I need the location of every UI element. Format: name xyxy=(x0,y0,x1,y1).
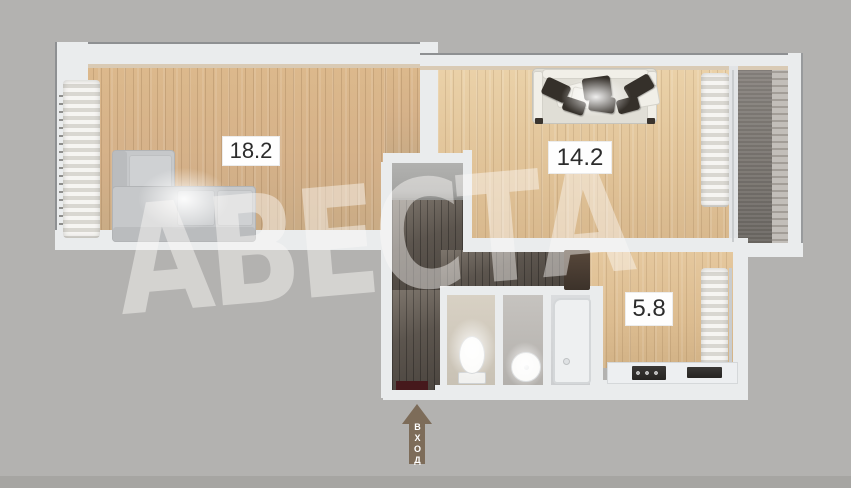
room-14-area: 14.2 xyxy=(557,144,604,172)
kitchen-window-frame xyxy=(729,268,732,366)
room-18-floor-niche xyxy=(385,66,422,156)
wall xyxy=(440,288,447,388)
curtain xyxy=(701,268,728,366)
curtain xyxy=(701,73,729,207)
hallway-wardrobe xyxy=(392,162,463,200)
wall xyxy=(381,162,392,398)
bottom-shadow-band xyxy=(0,476,851,488)
curtain xyxy=(63,80,100,238)
floor-plan: АВЕСТА 18.2 14.2 5.8 ВХОД xyxy=(0,0,851,488)
wall xyxy=(55,42,437,68)
wall xyxy=(383,390,435,400)
wall xyxy=(495,295,503,385)
entrance-arrow-icon xyxy=(402,404,432,424)
entrance-arrow-label: ВХОД xyxy=(409,424,425,464)
fridge xyxy=(564,250,590,290)
room-14-label: 14.2 xyxy=(548,141,612,174)
kitchen-area: 5.8 xyxy=(632,295,665,323)
wall xyxy=(383,153,472,163)
kitchen-label: 5.8 xyxy=(625,292,673,326)
room-18-label: 18.2 xyxy=(222,136,280,166)
light-glare xyxy=(138,168,230,230)
wall xyxy=(463,150,472,250)
sofa xyxy=(532,68,657,124)
drain xyxy=(563,358,570,365)
balcony-floor xyxy=(737,66,772,245)
kitchen-sink-appliance xyxy=(687,367,722,378)
hallway-floor-lower xyxy=(392,290,440,392)
balcony-window-frame xyxy=(732,70,734,242)
stove xyxy=(632,366,666,380)
light-glare xyxy=(505,342,545,388)
light-glare xyxy=(448,318,496,380)
entrance-door xyxy=(396,381,428,390)
wall xyxy=(788,53,803,257)
wall xyxy=(590,295,603,392)
hallway-floor-arm xyxy=(440,250,565,290)
bathtub xyxy=(553,298,591,384)
wall xyxy=(463,238,748,252)
room-18-area: 18.2 xyxy=(230,138,273,164)
